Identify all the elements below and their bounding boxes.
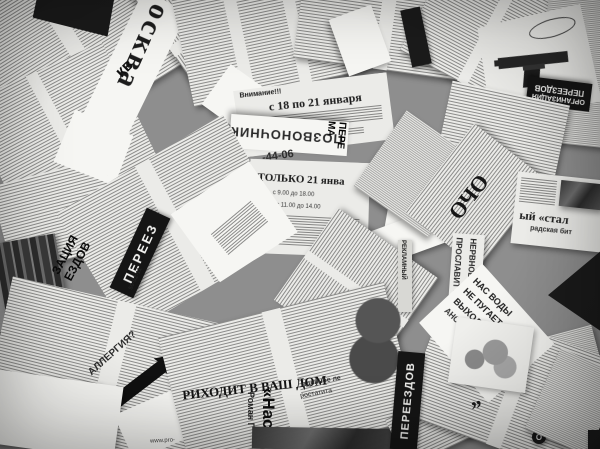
schedule-line1: с 9.00 до 18.00 xyxy=(273,190,315,198)
pereezdov-banner-text: ПЕРЕЕЗДОВ xyxy=(398,362,417,440)
reklamny-text: РЕКЛАМНЫЙ xyxy=(400,240,406,280)
fine-print-lines xyxy=(519,176,558,206)
only21-headline: ТОЛЬКО 21 янва xyxy=(257,171,345,188)
schedule-line2: с 11.00 до 14.00 xyxy=(276,202,321,210)
article-photo xyxy=(559,180,600,210)
small-paragraph-patch xyxy=(210,200,268,255)
pere-ma-label: ПЕРЕ МА xyxy=(323,120,347,149)
steel-article-clipping: ый «стал радская бит xyxy=(510,171,600,252)
teapot-sketch-clipping xyxy=(448,317,534,393)
nas-title: «Нас xyxy=(258,388,278,429)
steel-headline: ый «стал xyxy=(519,208,570,228)
newspaper-collage-photo: осква кв Внимание!!! с 18 по 21 января П… xyxy=(0,0,600,449)
oval-stamp xyxy=(527,13,578,44)
right-edge-wedge xyxy=(548,250,600,332)
corner-dark-bit xyxy=(588,430,600,449)
roman-byline: Роман Г xyxy=(246,392,256,428)
